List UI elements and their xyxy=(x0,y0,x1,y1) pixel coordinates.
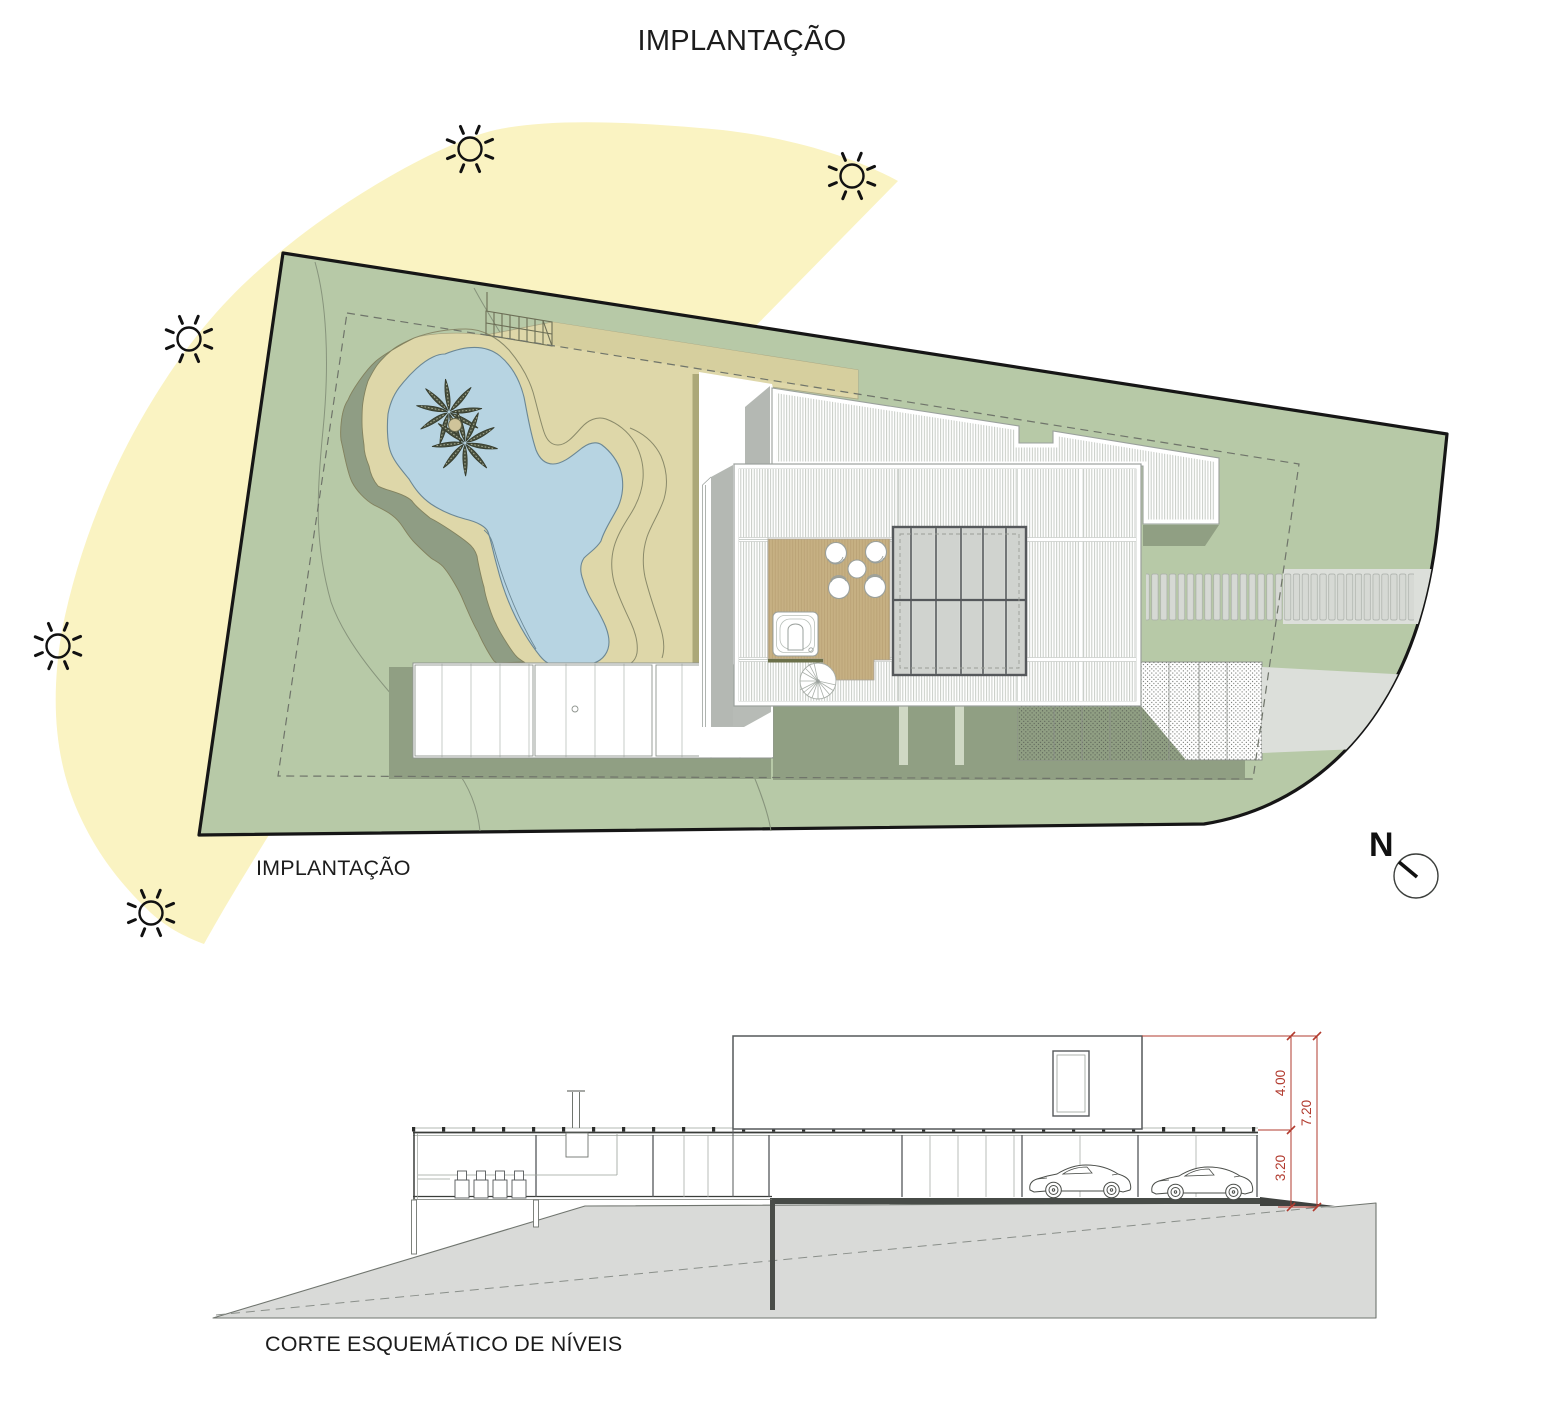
svg-text:3.20: 3.20 xyxy=(1273,1155,1288,1181)
svg-text:CORTE ESQUEMÁTICO DE NÍVEIS: CORTE ESQUEMÁTICO DE NÍVEIS xyxy=(265,1331,622,1356)
svg-text:4.00: 4.00 xyxy=(1273,1070,1288,1096)
svg-text:IMPLANTAÇÃO: IMPLANTAÇÃO xyxy=(256,855,411,880)
svg-text:7.20: 7.20 xyxy=(1299,1100,1314,1126)
svg-text:IMPLANTAÇÃO: IMPLANTAÇÃO xyxy=(637,23,846,57)
svg-text:N: N xyxy=(1369,826,1394,864)
